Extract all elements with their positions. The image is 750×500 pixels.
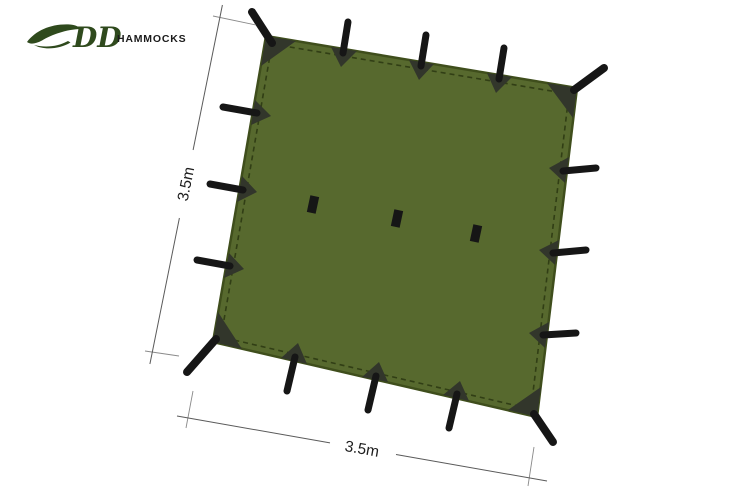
corner-strap-bottom-left — [187, 339, 216, 372]
tarp — [187, 12, 604, 442]
edge-strap-right-2 — [553, 250, 586, 253]
edge-strap-top-3 — [499, 48, 504, 79]
height-dimension-label: 3.5m — [175, 166, 199, 203]
logo-name-text: HAMMOCKS — [117, 33, 186, 45]
edge-strap-left-1 — [223, 107, 257, 113]
edge-strap-right-3 — [543, 333, 576, 335]
width-dimension-line-right — [396, 455, 547, 482]
corner-strap-top-right — [574, 68, 604, 90]
extension-line-bottom-right — [528, 447, 534, 486]
edge-strap-left-3 — [197, 260, 230, 266]
width-dimension-line-left — [177, 416, 330, 443]
corner-strap-top-left — [252, 12, 272, 43]
edge-strap-bottom-3 — [449, 394, 457, 428]
logo-brand-text: DD — [72, 21, 122, 54]
corner-strap-bottom-right — [534, 414, 553, 442]
tarp-product-diagram: DD HAMMOCKS — [0, 0, 750, 500]
edge-strap-left-2 — [210, 184, 243, 190]
edge-strap-top-1 — [343, 22, 348, 53]
brand-logo: DD HAMMOCKS — [27, 21, 186, 54]
width-dimension-label: 3.5m — [343, 438, 380, 461]
extension-line-bottom-left-width — [186, 391, 193, 428]
height-dimension-line-lower — [150, 218, 180, 364]
edge-strap-right-1 — [563, 168, 596, 171]
diagram-canvas: DD HAMMOCKS — [0, 0, 750, 500]
edge-strap-bottom-1 — [287, 357, 295, 391]
edge-strap-top-2 — [421, 35, 426, 66]
hammock-swoosh-underline — [34, 41, 71, 48]
extension-line-bottom-left-height — [145, 351, 179, 356]
edge-strap-bottom-2 — [368, 376, 376, 410]
height-dimension-line-upper — [193, 5, 222, 150]
